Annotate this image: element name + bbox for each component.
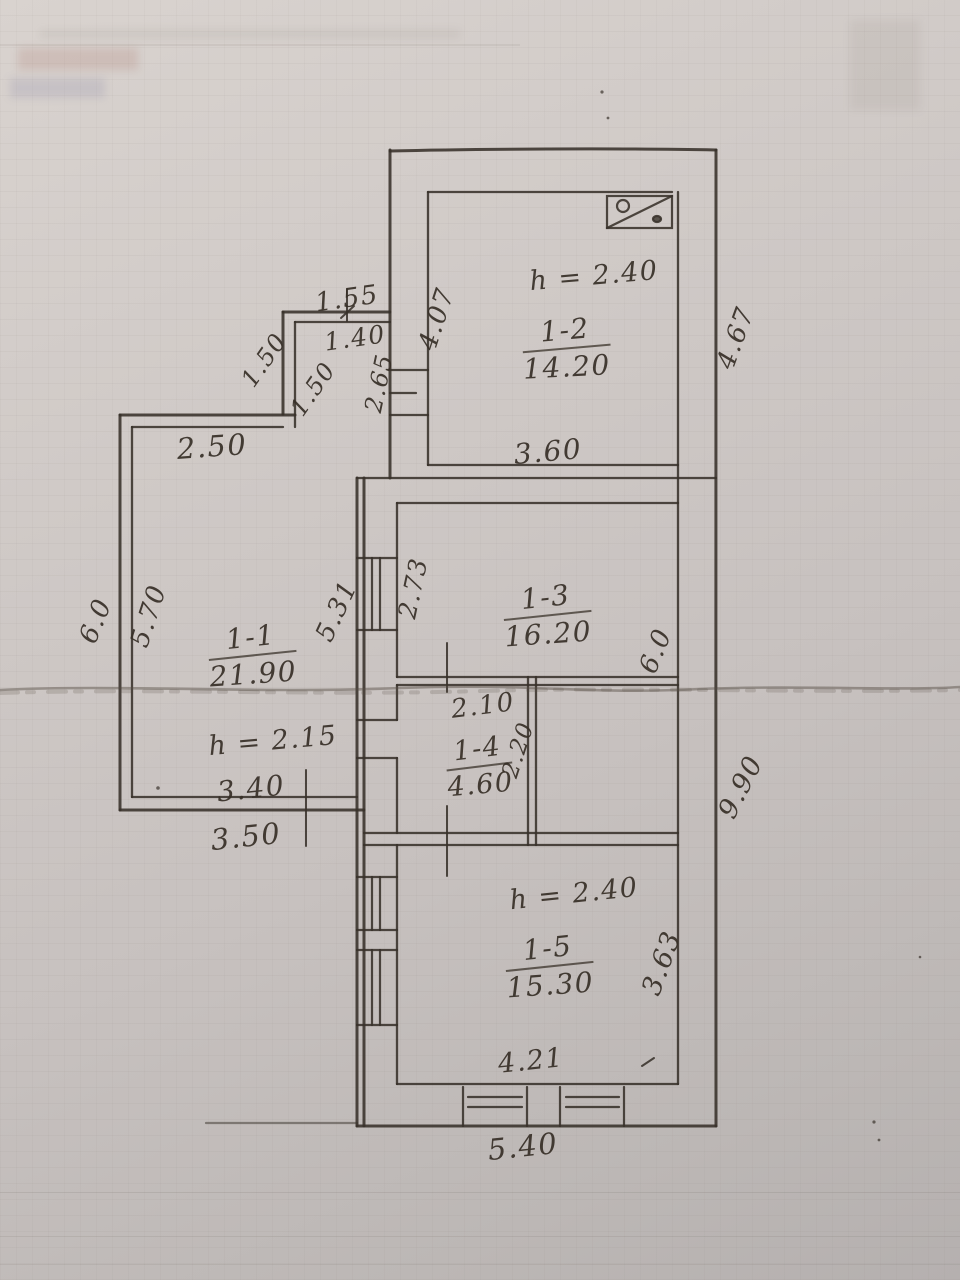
dimension-label: 4.67	[713, 304, 759, 373]
room-height-label: h = 2.15	[207, 722, 338, 760]
room-label-1-5: 1-515.30	[503, 932, 595, 1003]
dimension-label: 5.40	[486, 1129, 559, 1165]
dimension-label: 2.65	[361, 351, 397, 414]
room-label-1-1: 1-121.90	[206, 621, 298, 692]
dimension-label: 1.40	[323, 321, 388, 354]
dimension-label: 3.40	[216, 772, 287, 807]
dimension-label: 2.10	[450, 689, 517, 723]
dimension-label: 2.73	[394, 555, 431, 621]
dimension-label: 9.90	[714, 751, 768, 822]
room-area: 14.20	[522, 347, 611, 384]
room-height-label: h = 2.40	[528, 257, 659, 295]
dimension-label: 2.20	[499, 719, 539, 781]
dimension-label: 4.21	[497, 1044, 566, 1078]
room-height-label: h = 2.40	[508, 874, 639, 914]
dimension-label: 3.63	[638, 927, 686, 998]
dimension-label: 6.0	[75, 595, 116, 647]
plan-labels-layer: 1-214.20h = 2.401-121.90h = 2.151-316.20…	[0, 0, 960, 1280]
room-label-1-3: 1-316.20	[501, 581, 593, 652]
dimension-label: 1.55	[314, 282, 381, 317]
dimension-label: 5.31	[312, 577, 363, 646]
dimension-label: 2.50	[176, 430, 248, 464]
dimension-label: 3.50	[209, 819, 282, 855]
dimension-label: 1.50	[286, 358, 340, 420]
room-label-1-2: 1-214.20	[521, 314, 612, 383]
scanned-floor-plan-page: 1-214.20h = 2.401-121.90h = 2.151-316.20…	[0, 0, 960, 1280]
dimension-label: 5.70	[127, 582, 171, 651]
dimension-label: 6.0	[635, 625, 676, 677]
dimension-label: 3.60	[513, 435, 584, 469]
dimension-label: 1.50	[237, 329, 291, 391]
dimension-label: 4.07	[415, 285, 459, 354]
